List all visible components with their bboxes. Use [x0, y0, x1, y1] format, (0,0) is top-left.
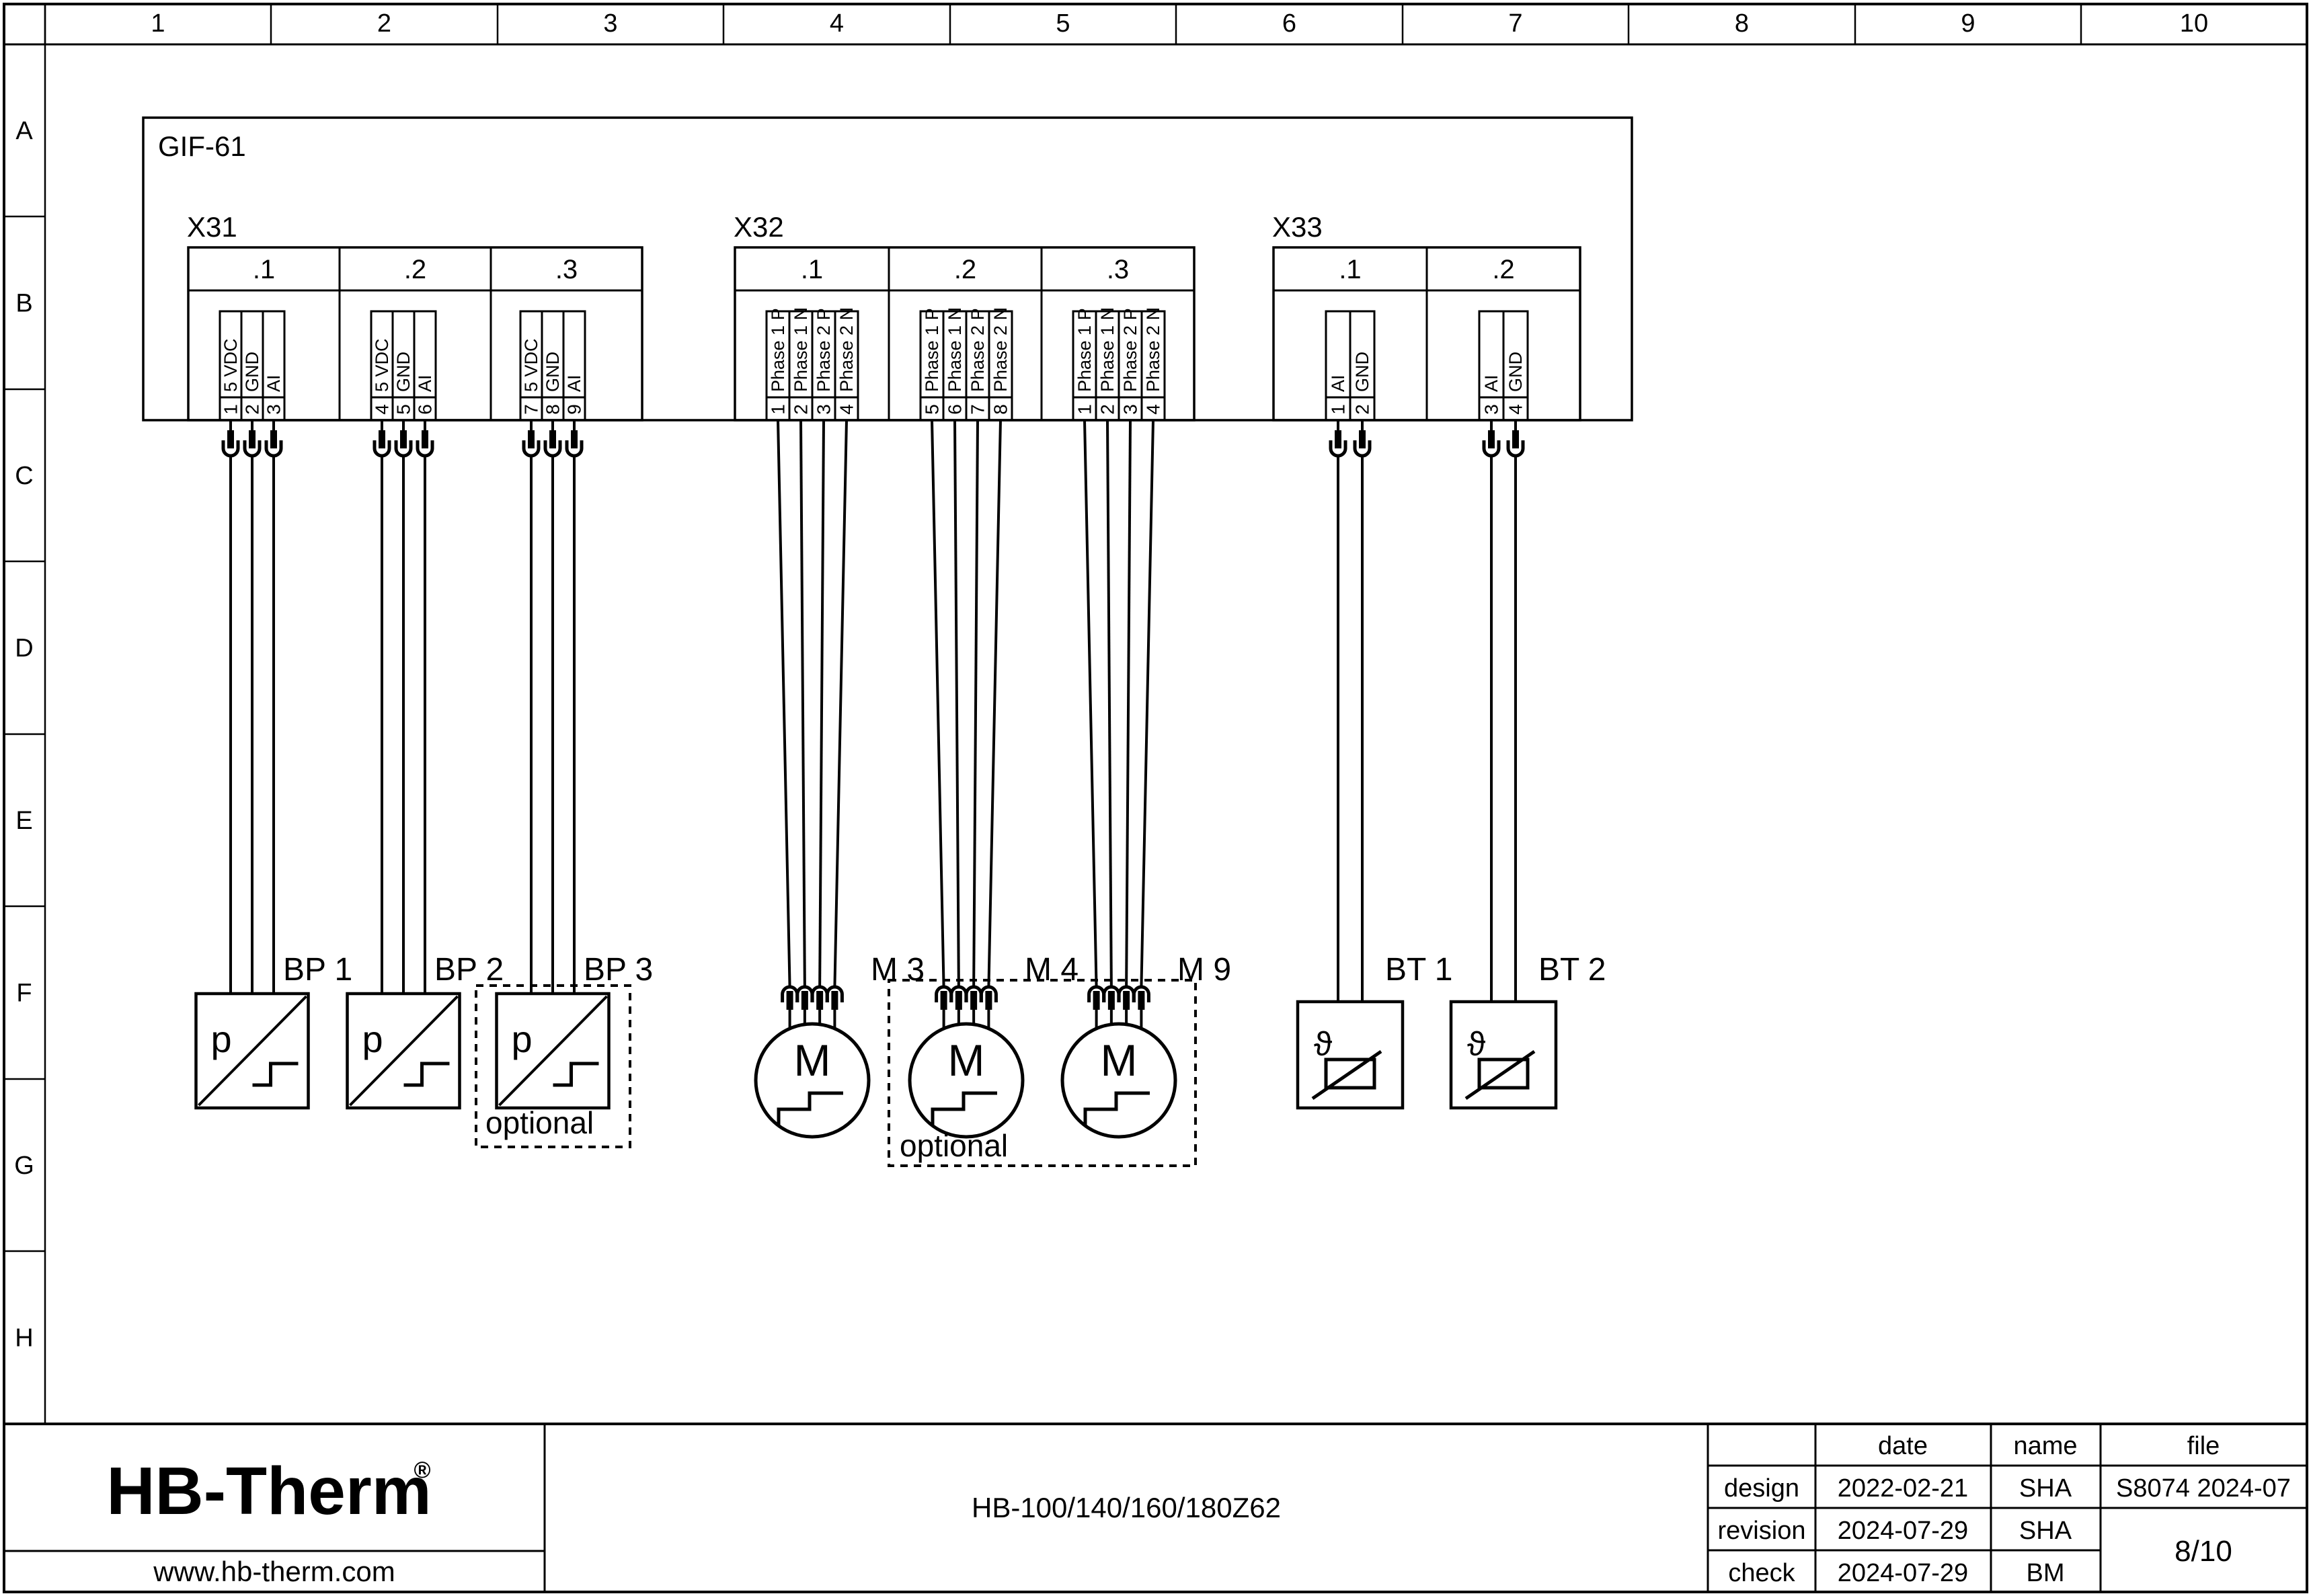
device-bp-3: BP 3p — [497, 420, 654, 1108]
ruler-column-label: 8 — [1735, 9, 1749, 38]
theta-symbol: ϑ — [1314, 1025, 1332, 1063]
module-outline — [143, 118, 1632, 420]
subconnector-x33-.1: .11AI2GND — [1326, 255, 1374, 420]
pin-x32.1-3: 3Phase 2 P — [812, 308, 835, 420]
pressure-sensor-symbol: p — [196, 994, 309, 1108]
ruler-column-label: 2 — [377, 9, 391, 38]
pin-name: GND — [1352, 352, 1372, 392]
wire — [820, 420, 824, 987]
plug-pin-bar — [270, 430, 277, 448]
pin-name: GND — [543, 352, 563, 392]
subconnector-label: .3 — [555, 255, 578, 284]
pin-name: Phase 2 N — [1143, 307, 1163, 392]
subconnector-x33-.2: .23AI4GND — [1479, 255, 1528, 420]
pin-name: Phase 1 N — [791, 307, 811, 392]
drawing-title: HB-100/140/160/180Z62 — [972, 1492, 1281, 1523]
ruler: 12345678910ABCDEFGH — [4, 4, 2307, 1424]
row-label-design: design — [1724, 1474, 1799, 1503]
device-label: BP 3 — [584, 952, 653, 988]
plug-pin-bar — [955, 991, 962, 1010]
plug-connector-icon — [1355, 420, 1370, 456]
pin-x33.2-3: 3AI — [1479, 311, 1503, 420]
subconnector-label: .1 — [253, 255, 275, 284]
plug-pin-bar — [1108, 991, 1115, 1010]
plug-connector-icon — [981, 987, 996, 1029]
pin-number: 8 — [543, 404, 563, 415]
pin-outline — [414, 311, 436, 420]
row-label-revision: revision — [1718, 1517, 1806, 1545]
connector-group-label: X33 — [1272, 211, 1323, 243]
theta-symbol: ϑ — [1467, 1025, 1485, 1063]
connector-group-label: X31 — [187, 211, 237, 243]
subconnector-x31-.3: .375 VDC8GND9AI — [520, 255, 585, 420]
pin-number: 2 — [242, 404, 263, 415]
device-bt-2: BT 2ϑ — [1451, 420, 1606, 1108]
connector-group-x33: X33.11AI2GND.23AI4GND — [1272, 211, 1580, 420]
plug-pin-bar — [1123, 991, 1130, 1010]
pin-x31.1-1: 15 VDC — [220, 311, 241, 420]
subconnector-x32-.3: .31Phase 1 P2Phase 1 N3Phase 2 P4Phase 2… — [1073, 255, 1165, 420]
subconnector-x32-.1: .11Phase 1 P2Phase 1 N3Phase 2 P4Phase 2… — [767, 255, 858, 420]
ruler-row-label: F — [16, 980, 32, 1008]
pin-x32.2-8: 8Phase 2 N — [989, 307, 1012, 420]
plug-connector-icon — [827, 987, 842, 1029]
subconnector-label: .1 — [1339, 255, 1361, 284]
pin-outline — [563, 311, 585, 420]
module-label: GIF-61 — [158, 130, 246, 162]
wiring-diagram-canvas: HB-Therm ® www.hb-therm.com HB-100/140/1… — [0, 0, 2311, 1596]
pin-x32.1-4: 4Phase 2 N — [835, 307, 858, 420]
motor-m-symbol: M — [794, 1035, 831, 1085]
plug-connector-icon — [567, 420, 582, 456]
ruler-column-label: 1 — [151, 9, 165, 38]
plug-pin-bar — [379, 430, 385, 448]
plug-pin-bar — [549, 430, 556, 448]
pin-x33.1-1: 1AI — [1326, 311, 1350, 420]
diagram-content: 12345678910ABCDEFGHGIF-61X31.115 VDC2GND… — [4, 4, 2307, 1424]
subconnector-x32-.2: .25Phase 1 P6Phase 1 N7Phase 2 P8Phase 2… — [921, 255, 1012, 420]
plug-pin-bar — [422, 430, 428, 448]
check-name: BM — [2027, 1559, 2065, 1587]
device-label: M 3 — [871, 952, 925, 988]
ruler-row-label: E — [15, 807, 32, 835]
pin-x32.1-2: 2Phase 1 N — [789, 307, 812, 420]
pin-x31.3-7: 75 VDC — [520, 311, 542, 420]
pin-number: 2 — [791, 404, 812, 415]
plug-connector-icon — [1508, 420, 1523, 456]
pin-number: 1 — [768, 404, 789, 415]
pin-number: 3 — [1120, 404, 1141, 415]
pin-name: Phase 2 N — [836, 307, 857, 392]
pin-number: 6 — [415, 404, 436, 415]
pin-name: Phase 1 P — [768, 308, 788, 392]
plug-pin-bar — [227, 430, 234, 448]
pin-number: 4 — [372, 404, 393, 415]
device-label: M 9 — [1177, 952, 1231, 988]
plug-connector-icon — [245, 420, 260, 456]
wire — [988, 420, 1001, 987]
pin-name: AI — [564, 374, 584, 392]
device-bp-2: BP 2p — [348, 420, 504, 1108]
device-m-9: M 9M — [1062, 420, 1231, 1137]
design-date: 2022-02-21 — [1838, 1474, 1968, 1503]
pin-x32.2-6: 6Phase 1 N — [943, 307, 966, 420]
pin-x33.2-4: 4GND — [1503, 311, 1528, 420]
temperature-sensor-symbol: ϑ — [1451, 1002, 1556, 1108]
pin-name: Phase 2 P — [814, 308, 834, 392]
subconnector-label: .1 — [801, 255, 823, 284]
file-number: S8074 2024-07 — [2116, 1474, 2291, 1503]
motor-symbol: M — [1062, 1024, 1175, 1137]
company-website: www.hb-therm.com — [153, 1556, 395, 1587]
optional-label: optional — [485, 1105, 594, 1140]
ruler-row-label: G — [14, 1152, 34, 1180]
device-label: M 4 — [1025, 952, 1079, 988]
plug-pin-bar — [1138, 991, 1144, 1010]
wire — [834, 420, 847, 987]
pin-number: 4 — [1143, 404, 1164, 415]
pin-name: 5 VDC — [521, 338, 541, 392]
plug-connector-icon — [524, 420, 539, 456]
check-date: 2024-07-29 — [1838, 1559, 1968, 1587]
motor-symbol: M — [756, 1024, 869, 1137]
pin-x31.2-6: 6AI — [414, 311, 436, 420]
pin-number: 3 — [1481, 404, 1502, 415]
module-gif-61: GIF-61 — [143, 118, 1632, 420]
plug-pin-bar — [528, 430, 535, 448]
row-label-check: check — [1728, 1559, 1795, 1587]
pin-name: AI — [1481, 374, 1501, 392]
wire — [778, 420, 790, 987]
revision-date: 2024-07-29 — [1838, 1517, 1968, 1545]
subconnector-x31-.1: .115 VDC2GND3AI — [220, 255, 284, 420]
revision-name: SHA — [2019, 1517, 2072, 1545]
wire — [1141, 420, 1153, 987]
ruler-column-label: 10 — [2180, 9, 2208, 38]
pin-x31.3-9: 9AI — [563, 311, 585, 420]
plug-pin-bar — [985, 991, 992, 1010]
pin-name: GND — [242, 352, 262, 392]
wire — [974, 420, 978, 987]
pin-number: 1 — [1328, 404, 1349, 415]
motor-m-symbol: M — [948, 1035, 985, 1085]
pin-name: Phase 2 N — [990, 307, 1011, 392]
ruler-column-label: 9 — [1961, 9, 1975, 38]
pin-name: Phase 1 P — [922, 308, 942, 392]
ruler-column-label: 3 — [603, 9, 617, 38]
plug-pin-bar — [1093, 991, 1100, 1010]
pin-name: Phase 1 P — [1074, 308, 1095, 392]
pressure-sensor-symbol: p — [497, 994, 609, 1108]
pin-number: 4 — [836, 404, 857, 415]
plug-connector-icon — [783, 987, 797, 1029]
plug-pin-bar — [787, 991, 793, 1010]
ruler-row-label: B — [15, 290, 32, 318]
plug-pin-bar — [1488, 430, 1495, 448]
wire — [1126, 420, 1130, 987]
pin-name: Phase 1 N — [1097, 307, 1118, 392]
pin-outline — [1326, 311, 1350, 420]
pin-number: 4 — [1505, 404, 1526, 415]
pin-name: GND — [1505, 352, 1526, 392]
pin-x32.2-7: 7Phase 2 P — [966, 308, 989, 420]
subconnector-x31-.2: .245 VDC5GND6AI — [371, 255, 436, 420]
pin-x31.2-5: 5GND — [393, 311, 414, 420]
design-name: SHA — [2019, 1474, 2072, 1503]
connector-group-label: X32 — [734, 211, 784, 243]
plug-pin-bar — [1359, 430, 1366, 448]
pin-name: GND — [393, 352, 414, 392]
subconnector-label: .3 — [1107, 255, 1129, 284]
plug-connector-icon — [1331, 420, 1345, 456]
pin-x32.3-2: 2Phase 1 N — [1096, 307, 1119, 420]
pin-name: 5 VDC — [221, 338, 241, 392]
page-frame — [4, 4, 2307, 1592]
plug-connector-icon — [937, 987, 951, 1029]
pressure-p-symbol: p — [512, 1018, 533, 1060]
connector-group-x32: X32.11Phase 1 P2Phase 1 N3Phase 2 P4Phas… — [734, 211, 1194, 420]
plug-pin-bar — [831, 991, 838, 1010]
table-header-name: name — [2013, 1432, 2077, 1460]
motor-m-symbol: M — [1101, 1035, 1138, 1085]
plug-connector-icon — [266, 420, 281, 456]
plug-pin-bar — [1512, 430, 1519, 448]
plug-pin-bar — [801, 991, 808, 1010]
pin-x31.1-3: 3AI — [263, 311, 284, 420]
temperature-sensor-symbol: ϑ — [1298, 1002, 1403, 1108]
title-block-text: HB-Therm ® www.hb-therm.com HB-100/140/1… — [106, 1432, 2291, 1587]
device-label: BT 2 — [1538, 952, 1606, 988]
plug-pin-bar — [816, 991, 823, 1010]
table-header-file: file — [2187, 1432, 2220, 1460]
plug-connector-icon — [223, 420, 238, 456]
wire — [1085, 420, 1097, 987]
plug-connector-icon — [1134, 987, 1148, 1029]
pin-x31.3-8: 8GND — [542, 311, 563, 420]
sheet-indicator: 8/10 — [2175, 1535, 2232, 1568]
table-header-date: date — [1878, 1432, 1928, 1460]
pin-number: 7 — [968, 404, 988, 415]
plug-connector-icon — [545, 420, 560, 456]
pin-number: 5 — [393, 404, 414, 415]
device-label: BT 1 — [1385, 952, 1453, 988]
plug-pin-bar — [941, 991, 947, 1010]
device-label: BP 1 — [283, 952, 352, 988]
schematic-page: HB-Therm ® www.hb-therm.com HB-100/140/1… — [0, 0, 2311, 1596]
pin-number: 6 — [945, 404, 966, 415]
pin-name: AI — [264, 374, 284, 392]
device-bp-1: BP 1p — [196, 420, 353, 1108]
pin-number: 5 — [922, 404, 943, 415]
wire — [801, 420, 805, 987]
ruler-column-label: 5 — [1056, 9, 1070, 38]
ruler-column-label: 7 — [1508, 9, 1522, 38]
subconnector-label: .2 — [954, 255, 976, 284]
pressure-p-symbol: p — [211, 1018, 232, 1060]
subconnector-label: .2 — [404, 255, 426, 284]
pin-number: 1 — [1074, 404, 1095, 415]
ruler-row-label: D — [15, 635, 33, 663]
pin-name: Phase 2 P — [1120, 308, 1140, 392]
ruler-column-label: 6 — [1282, 9, 1296, 38]
ruler-row-label: C — [15, 462, 33, 490]
pin-x32.3-1: 1Phase 1 P — [1073, 308, 1096, 420]
pin-number: 7 — [521, 404, 542, 415]
pin-outline — [263, 311, 284, 420]
pressure-sensor-symbol: p — [348, 994, 460, 1108]
pin-x32.2-5: 5Phase 1 P — [921, 308, 943, 420]
pin-x31.1-2: 2GND — [241, 311, 263, 420]
pin-number: 8 — [990, 404, 1011, 415]
plug-connector-icon — [1089, 987, 1104, 1029]
registered-trademark-icon: ® — [414, 1458, 430, 1483]
plug-pin-bar — [400, 430, 407, 448]
subconnector-label: .2 — [1492, 255, 1514, 284]
pin-number: 9 — [564, 404, 585, 415]
device-bt-1: BT 1ϑ — [1298, 420, 1453, 1108]
wire — [932, 420, 944, 987]
pressure-p-symbol: p — [362, 1018, 383, 1060]
wire — [1107, 420, 1111, 987]
pin-number: 3 — [264, 404, 284, 415]
pin-x31.2-4: 45 VDC — [371, 311, 393, 420]
company-logo: HB-Therm — [106, 1453, 431, 1529]
pin-number: 2 — [1097, 404, 1118, 415]
connector-group-x31: X31.115 VDC2GND3AI.245 VDC5GND6AI.375 VD… — [187, 211, 642, 420]
pin-number: 3 — [814, 404, 834, 415]
pin-number: 1 — [221, 404, 241, 415]
ruler-column-label: 4 — [830, 9, 844, 38]
plug-connector-icon — [375, 420, 389, 456]
plug-connector-icon — [396, 420, 411, 456]
ruler-row-label: A — [15, 117, 33, 145]
plug-pin-bar — [571, 430, 578, 448]
pin-name: Phase 1 N — [945, 307, 965, 392]
plug-pin-bar — [970, 991, 977, 1010]
pin-name: AI — [415, 374, 435, 392]
pin-x32.3-3: 3Phase 2 P — [1119, 308, 1142, 420]
pin-name: AI — [1328, 374, 1348, 392]
pin-number: 2 — [1352, 404, 1373, 415]
wire — [955, 420, 959, 987]
pin-name: 5 VDC — [372, 338, 392, 392]
ruler-row-label: H — [15, 1324, 33, 1353]
pin-x33.1-2: 2GND — [1350, 311, 1374, 420]
device-m-4: M 4M — [910, 420, 1079, 1137]
plug-connector-icon — [418, 420, 432, 456]
pin-x32.1-1: 1Phase 1 P — [767, 308, 789, 420]
device-m-3: M 3M — [756, 420, 925, 1137]
device-label: BP 2 — [434, 952, 504, 988]
motor-symbol: M — [910, 1024, 1023, 1137]
plug-pin-bar — [1335, 430, 1341, 448]
pin-outline — [1479, 311, 1503, 420]
pin-x32.3-4: 4Phase 2 N — [1142, 307, 1165, 420]
plug-connector-icon — [1484, 420, 1499, 456]
pin-name: Phase 2 P — [968, 308, 988, 392]
plug-pin-bar — [249, 430, 256, 448]
